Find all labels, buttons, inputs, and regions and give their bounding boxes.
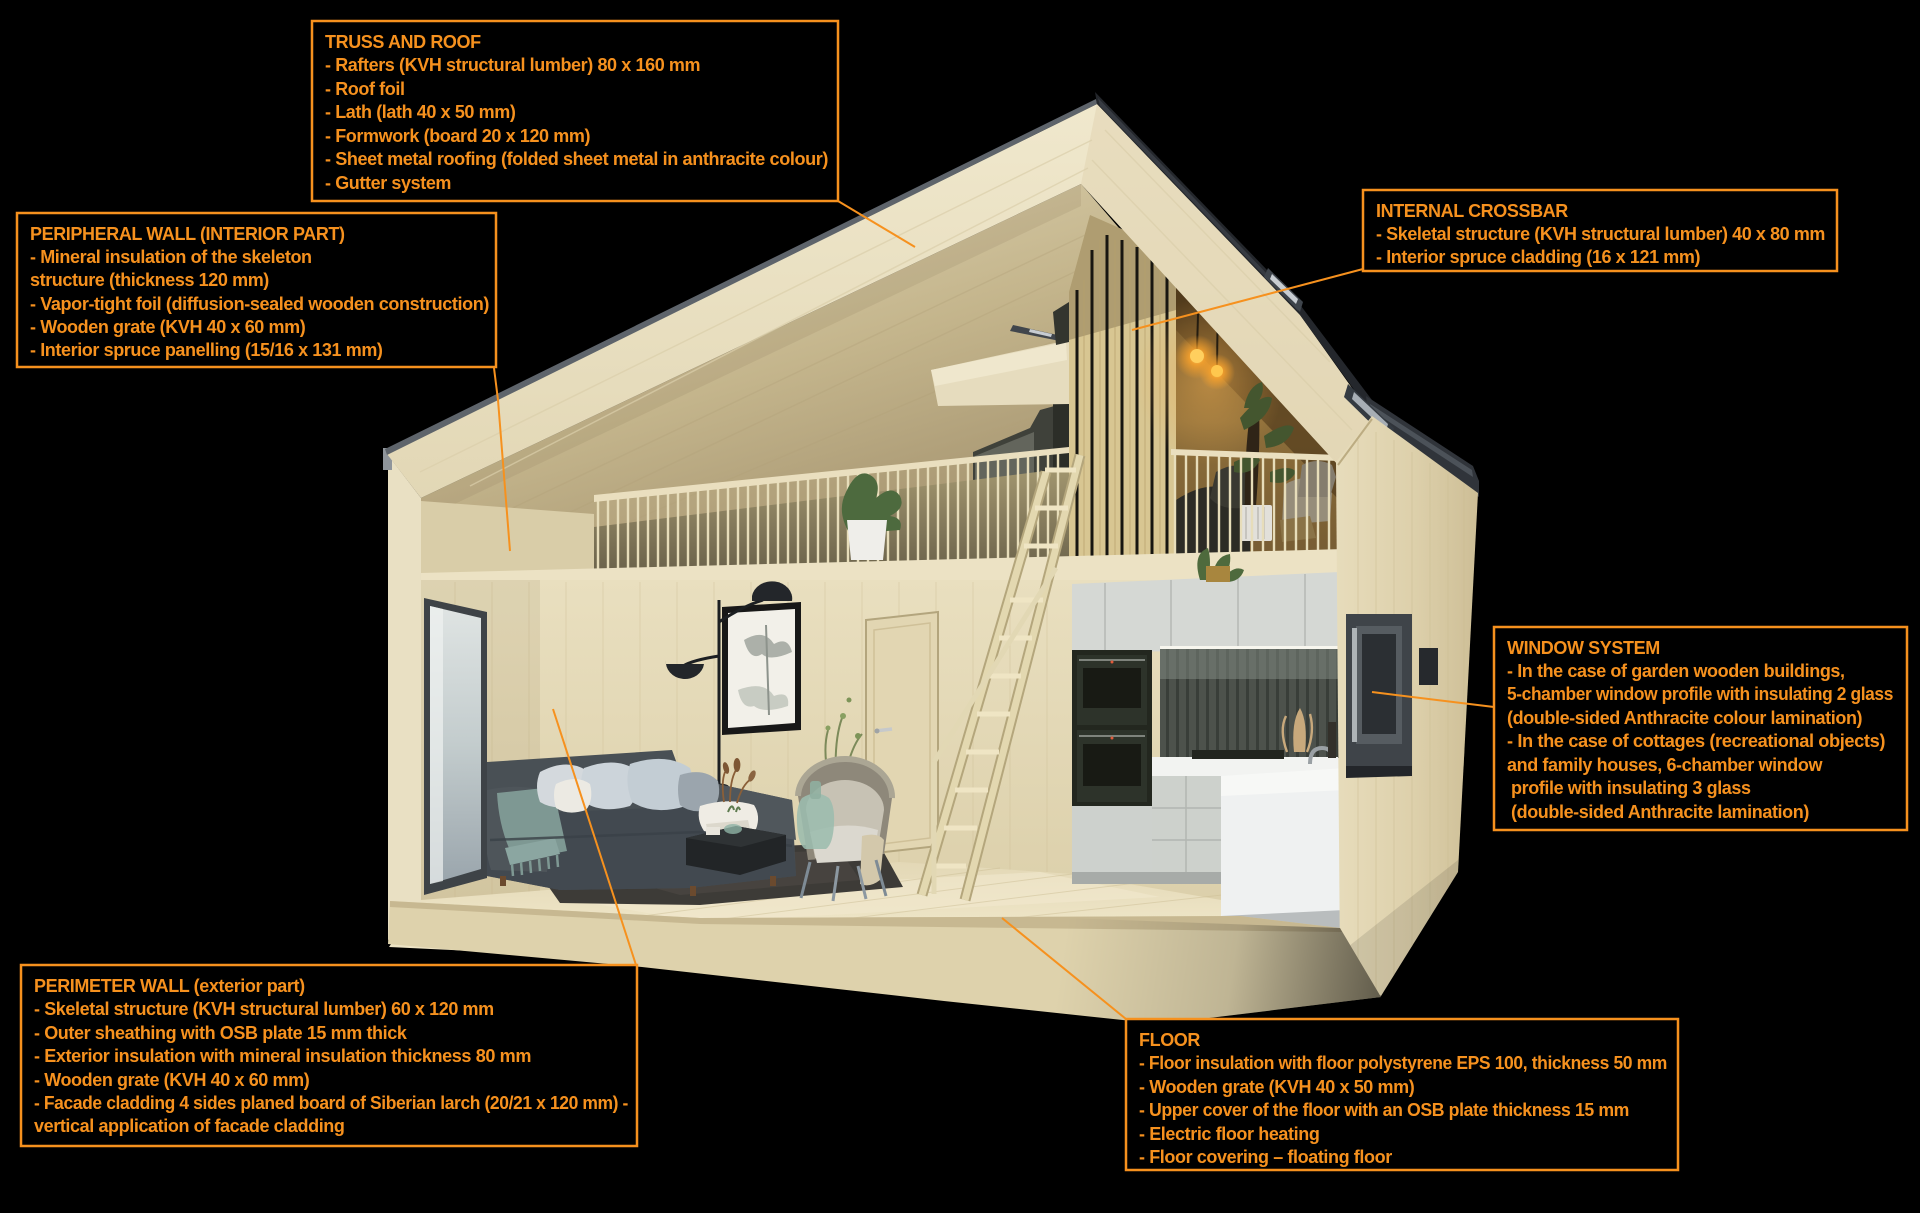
svg-text:- Wooden grate (KVH 40 x 50 mm: - Wooden grate (KVH 40 x 50 mm) <box>1139 1077 1415 1097</box>
svg-text:vertical application of facade: vertical application of facade cladding <box>34 1116 344 1136</box>
svg-text:- Formwork (board 20 x 120 mm): - Formwork (board 20 x 120 mm) <box>325 126 590 146</box>
svg-text:- Sheet metal roofing (folded: - Sheet metal roofing (folded sheet meta… <box>325 149 828 169</box>
svg-text:structure (thickness 120 mm): structure (thickness 120 mm) <box>30 270 269 290</box>
svg-text:- Gutter system: - Gutter system <box>325 173 451 193</box>
svg-text:- Upper cover of the floor wit: - Upper cover of the floor with an OSB p… <box>1139 1100 1629 1120</box>
svg-text:- Facade cladding 4 sides plan: - Facade cladding 4 sides planed board o… <box>34 1093 628 1113</box>
svg-text:(double-sided Anthracite lamin: (double-sided Anthracite lamination) <box>1511 802 1809 822</box>
svg-text:FLOOR: FLOOR <box>1139 1030 1200 1050</box>
svg-text:- Wooden grate (KVH 40 x 60 mm: - Wooden grate (KVH 40 x 60 mm) <box>30 317 306 337</box>
svg-text:INTERNAL CROSSBAR: INTERNAL CROSSBAR <box>1376 201 1568 221</box>
svg-text:- Mineral insulation of the sk: - Mineral insulation of the skeleton <box>30 247 312 267</box>
svg-text:5-chamber window profile with: 5-chamber window profile with insulating… <box>1507 684 1893 704</box>
svg-text:- Vapor-tight foil (diffusion-: - Vapor-tight foil (diffusion-sealed woo… <box>30 294 489 314</box>
svg-text:PERIPHERAL WALL (INTERIOR PART: PERIPHERAL WALL (INTERIOR PART) <box>30 224 345 244</box>
svg-text:- Skeletal structure (KVH stru: - Skeletal structure (KVH structural lum… <box>1376 224 1825 244</box>
svg-text:(double-sided Anthracite colou: (double-sided Anthracite colour laminati… <box>1507 708 1863 728</box>
svg-text:- Electric floor heating: - Electric floor heating <box>1139 1124 1319 1144</box>
svg-text:- Skeletal structure (KVH stru: - Skeletal structure (KVH structural lum… <box>34 999 494 1019</box>
svg-text:- Interior spruce panelling (1: - Interior spruce panelling (15/16 x 131… <box>30 340 383 360</box>
svg-text:profile with insulating 3 glas: profile with insulating 3 glass <box>1511 778 1751 798</box>
svg-text:- Floor covering – floating fl: - Floor covering – floating floor <box>1139 1147 1392 1167</box>
svg-text:- In the case of garden wooden: - In the case of garden wooden buildings… <box>1507 661 1845 681</box>
svg-text:WINDOW SYSTEM: WINDOW SYSTEM <box>1507 638 1660 658</box>
svg-text:PERIMETER WALL (exterior part): PERIMETER WALL (exterior part) <box>34 976 305 996</box>
svg-text:- Lath (lath 40 x 50 mm): - Lath (lath 40 x 50 mm) <box>325 102 516 122</box>
svg-text:- Outer sheathing with OSB pla: - Outer sheathing with OSB plate 15 mm t… <box>34 1023 408 1043</box>
svg-text:- Wooden grate (KVH 40 x 60 mm: - Wooden grate (KVH 40 x 60 mm) <box>34 1070 310 1090</box>
svg-text:- Rafters (KVH structural lumb: - Rafters (KVH structural lumber) 80 x 1… <box>325 55 700 75</box>
svg-text:- Exterior insulation with min: - Exterior insulation with mineral insul… <box>34 1046 531 1066</box>
svg-text:- Floor insulation with floor: - Floor insulation with floor polystyren… <box>1139 1053 1667 1073</box>
svg-text:- Roof foil: - Roof foil <box>325 79 405 99</box>
svg-text:and family houses, 6-chamber w: and family houses, 6-chamber window <box>1507 755 1823 775</box>
svg-text:TRUSS AND ROOF: TRUSS AND ROOF <box>325 32 481 52</box>
svg-text:- In the case of cottages (rec: - In the case of cottages (recreational … <box>1507 731 1885 751</box>
svg-text:- Interior spruce cladding (16: - Interior spruce cladding (16 x 121 mm) <box>1376 247 1701 267</box>
